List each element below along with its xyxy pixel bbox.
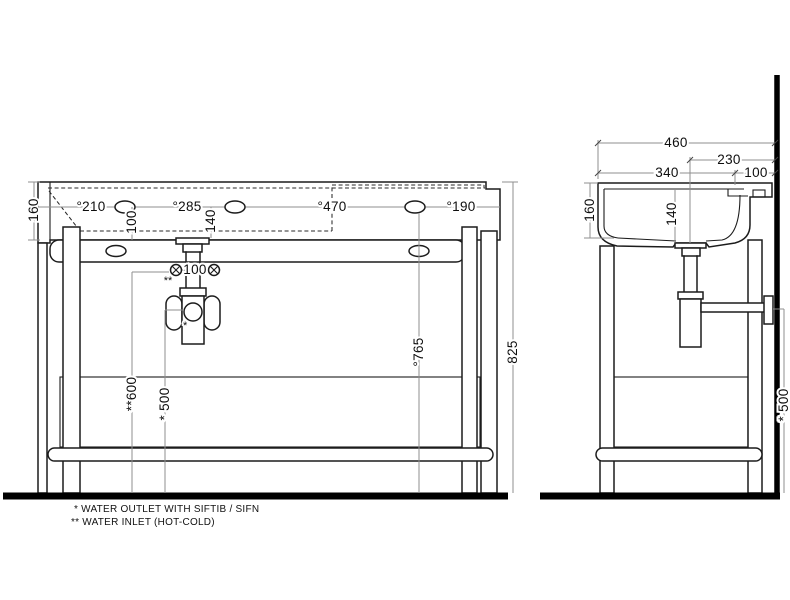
side-shelf <box>603 377 748 447</box>
dim-460-depth: 460 <box>664 135 687 150</box>
dim-230-drain-to-wall: 230 <box>717 152 740 167</box>
tap-hole <box>405 201 425 213</box>
front-water-inlets: 100 ** <box>164 262 220 287</box>
dim-285: °285 <box>172 199 201 214</box>
dim-825-total-height: 825 <box>505 340 520 363</box>
tap-hole <box>225 201 245 213</box>
front-fixing-hole-left <box>106 246 126 257</box>
dim-765-fixing-height: °765 <box>411 337 426 366</box>
dim-190: °190 <box>446 199 475 214</box>
dim-inlet-spacing: 100 <box>183 262 206 277</box>
side-towel-rail <box>596 448 762 461</box>
inlet-ref-mark: ** <box>164 275 173 287</box>
dim-160-side: 160 <box>582 198 597 221</box>
wall-flange <box>764 296 773 324</box>
trap-wing-right <box>204 296 220 330</box>
drawing-svg: * 100 ** 160 °210 <box>0 0 790 600</box>
side-basin-section <box>598 183 772 247</box>
dim-600-inlet-height: **600 <box>124 377 139 412</box>
dim-500-outlet-height-side: * 500 <box>776 388 790 421</box>
front-basin-outline <box>38 182 500 243</box>
trap-collar <box>678 292 703 299</box>
dim-470: °470 <box>317 199 346 214</box>
dim-500-outlet-height: * 500 <box>157 387 172 420</box>
dim-340-front-to-tap: 340 <box>655 165 678 180</box>
front-shelf <box>60 377 480 447</box>
trap-collar <box>180 288 206 296</box>
dim-160-front: 160 <box>26 198 41 221</box>
dim-210: °210 <box>76 199 105 214</box>
side-view: 460 230 340 100 160 140 <box>540 75 790 499</box>
leg <box>38 243 47 493</box>
dim-100-offset: 100 <box>124 210 139 233</box>
outlet-pipe <box>701 303 766 312</box>
footnote-inlet: ** WATER INLET (HOT-COLD) <box>71 517 215 528</box>
footnote-outlet: * WATER OUTLET WITH SIFTIB / SIFN <box>74 504 259 515</box>
footnotes: * WATER OUTLET WITH SIFTIB / SIFN ** WAT… <box>71 504 259 528</box>
drain-neck <box>682 248 700 256</box>
trap-wing-left <box>166 296 182 330</box>
dim-100-tap-to-wall: 100 <box>744 165 767 180</box>
front-view: * 100 ** 160 °210 <box>3 182 520 496</box>
front-towel-rail <box>48 448 493 461</box>
trap-body <box>680 299 701 347</box>
drain-neck <box>183 244 202 252</box>
technical-drawing-canvas: * 100 ** 160 °210 <box>0 0 790 600</box>
outlet-ref-mark: * <box>183 320 188 332</box>
dim-140-offset: 140 <box>203 209 218 232</box>
dim-140-bowl-depth: 140 <box>664 202 679 225</box>
trap-outlet-circle <box>184 303 202 321</box>
drain-flange <box>176 238 209 244</box>
